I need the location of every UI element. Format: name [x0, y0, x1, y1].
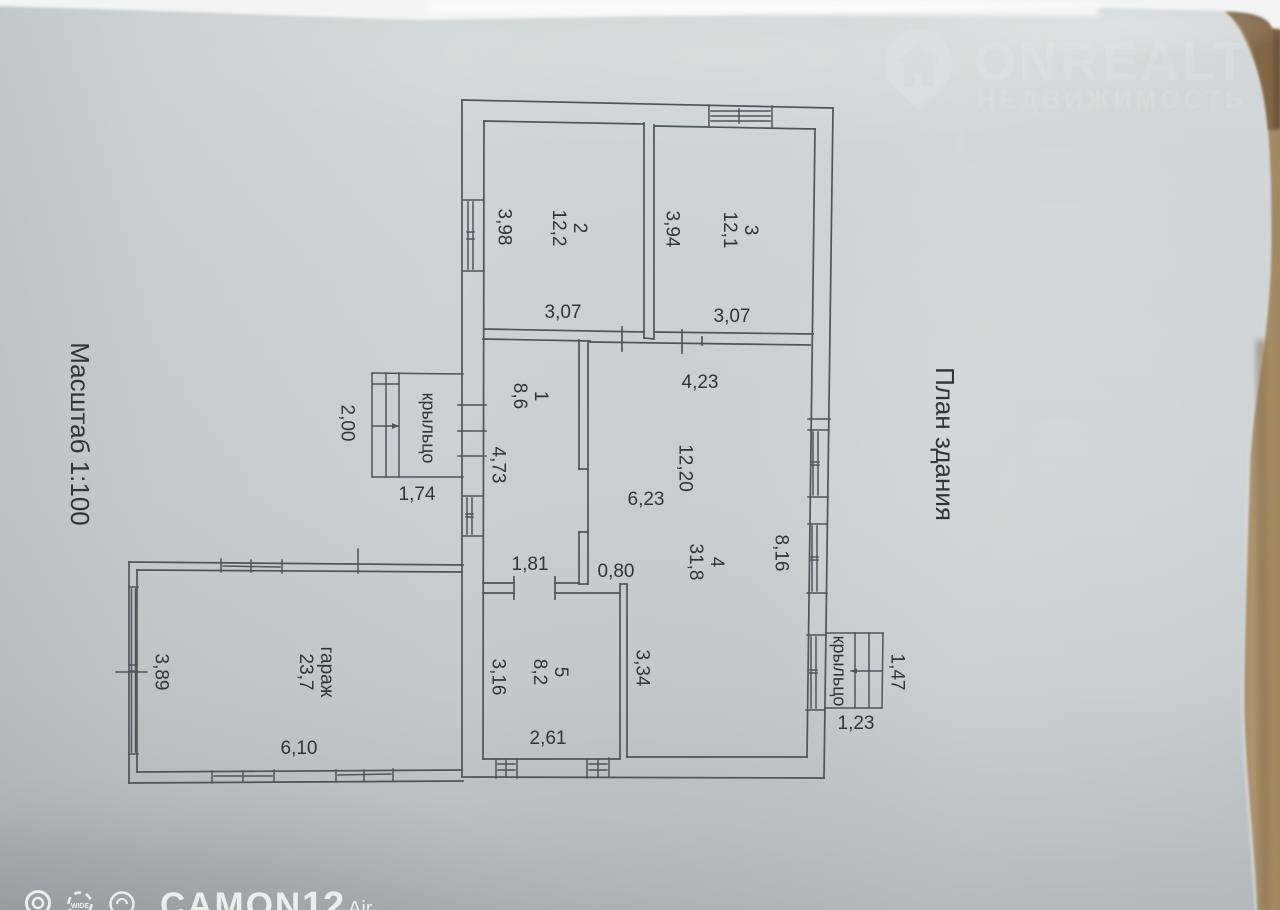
- svg-text:CAMON: CAMON: [160, 886, 302, 910]
- svg-text:3,07: 3,07: [545, 302, 582, 323]
- svg-text:12,2: 12,2: [548, 210, 569, 247]
- svg-text:WIDE: WIDE: [71, 903, 90, 910]
- svg-text:5: 5: [550, 667, 571, 678]
- svg-text:2,00: 2,00: [337, 405, 358, 442]
- svg-text:23,7: 23,7: [295, 654, 316, 691]
- svg-text:6,23: 6,23: [628, 489, 665, 510]
- svg-text:4: 4: [706, 557, 727, 568]
- svg-text:6,10: 6,10: [281, 738, 318, 759]
- svg-text:Масштаб 1:100: Масштаб 1:100: [65, 342, 95, 526]
- svg-text:2,61: 2,61: [530, 728, 567, 749]
- svg-text:1,74: 1,74: [399, 484, 436, 505]
- svg-text:12,20: 12,20: [675, 444, 696, 492]
- svg-text:31,8: 31,8: [685, 544, 706, 581]
- svg-text:ONREALT: ONREALT: [974, 32, 1248, 92]
- svg-text:3,16: 3,16: [488, 659, 509, 696]
- svg-text:3,98: 3,98: [494, 209, 515, 246]
- svg-text:Air: Air: [348, 898, 373, 910]
- svg-text:3,89: 3,89: [151, 654, 172, 691]
- svg-text:8,2: 8,2: [529, 659, 550, 685]
- svg-text:1,23: 1,23: [838, 713, 875, 734]
- svg-text:крыльцо: крыльцо: [830, 636, 850, 707]
- svg-text:крыльцо: крыльцо: [419, 393, 439, 464]
- svg-text:4,23: 4,23: [682, 372, 719, 393]
- svg-text:1,81: 1,81: [512, 554, 549, 575]
- svg-text:3,07: 3,07: [714, 306, 751, 327]
- svg-text:0,80: 0,80: [598, 561, 635, 582]
- svg-text:План здания: План здания: [930, 367, 960, 521]
- svg-text:1: 1: [530, 391, 551, 402]
- svg-text:8,16: 8,16: [771, 535, 792, 572]
- svg-text:1,47: 1,47: [887, 654, 908, 691]
- svg-text:НЕДВИЖИМОСТЬ: НЕДВИЖИМОСТЬ: [977, 86, 1247, 114]
- svg-text:гараж: гараж: [316, 647, 337, 698]
- svg-text:4,73: 4,73: [488, 447, 509, 484]
- svg-text:3,34: 3,34: [632, 650, 653, 687]
- svg-text:3,94: 3,94: [662, 211, 683, 248]
- svg-text:2: 2: [569, 223, 590, 234]
- svg-text:8,6: 8,6: [509, 383, 530, 409]
- svg-text:3: 3: [740, 225, 761, 236]
- svg-text:12,1: 12,1: [719, 212, 740, 249]
- svg-text:12: 12: [302, 885, 344, 910]
